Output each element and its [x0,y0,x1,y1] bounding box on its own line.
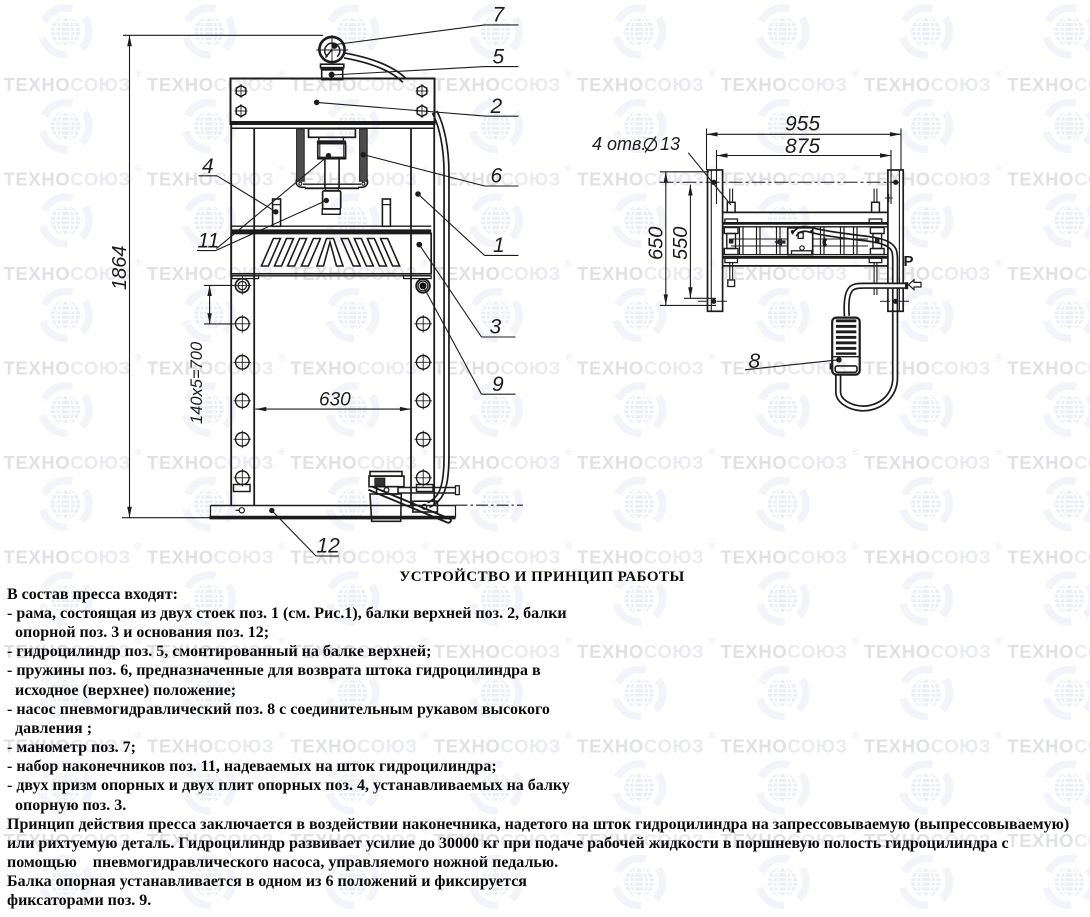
svg-text:2: 2 [490,95,503,118]
svg-text:4 отв.: 4 отв. [592,134,646,154]
svg-text:630: 630 [319,390,351,411]
svg-text:P: P [904,253,914,270]
svg-text:8: 8 [749,350,761,373]
svg-text:875: 875 [785,135,820,158]
svg-text:6: 6 [491,165,503,188]
svg-text:550: 550 [670,227,692,260]
svg-text:650: 650 [646,227,668,260]
svg-text:140x5=700: 140x5=700 [188,341,206,424]
svg-text:4: 4 [202,155,214,178]
svg-text:11: 11 [198,230,220,253]
svg-text:1864: 1864 [109,246,131,291]
svg-text:13: 13 [660,134,680,154]
svg-text:7: 7 [493,4,506,27]
svg-text:3: 3 [490,316,502,339]
svg-text:955: 955 [785,113,820,136]
svg-text:9: 9 [492,373,504,396]
svg-text:12: 12 [317,535,341,558]
svg-text:1: 1 [493,234,505,257]
svg-text:5: 5 [493,45,505,68]
